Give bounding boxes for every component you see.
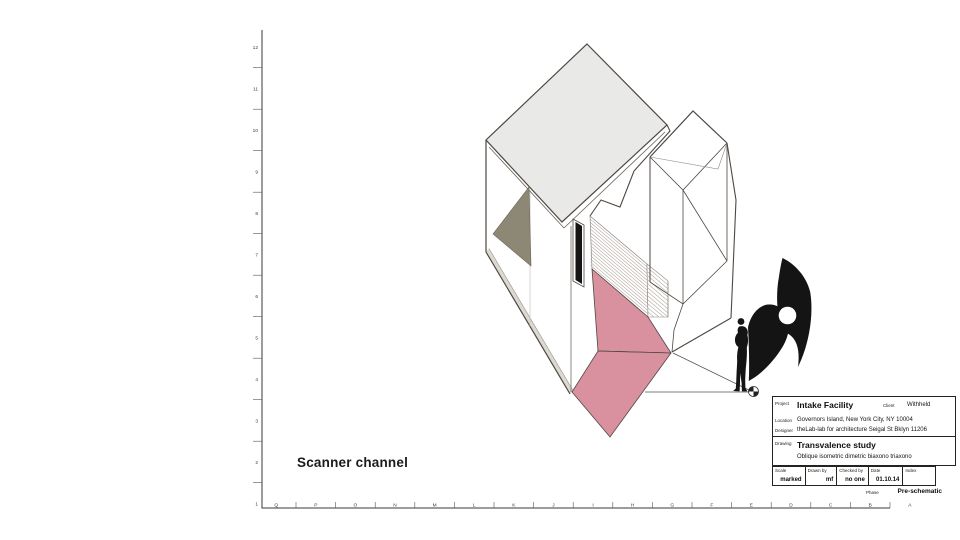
drawn-by-value: mf bbox=[826, 477, 833, 483]
title-block-table: Scale marked Drawn by mf Checked by no o… bbox=[772, 466, 936, 486]
checked-by-cell: Checked by no one bbox=[836, 467, 868, 485]
grid-col-label: A bbox=[908, 503, 912, 509]
grid-row-label: 12 bbox=[253, 45, 259, 51]
drawn-by-label: Drawn by bbox=[808, 468, 827, 473]
date-label: Date bbox=[871, 468, 881, 473]
grid-col-label: C bbox=[829, 503, 833, 509]
grid-row-label: 8 bbox=[255, 211, 258, 217]
grid-row-label: 6 bbox=[255, 294, 258, 300]
index-label: Index bbox=[905, 468, 916, 473]
grid-col-label: D bbox=[789, 503, 793, 509]
project-label: Project bbox=[775, 401, 789, 406]
survey-target-icon bbox=[749, 387, 759, 397]
designer-value: theLab-lab for architecture Seigal St Bk… bbox=[797, 427, 927, 433]
crescent-cutout-circle bbox=[779, 307, 797, 325]
grid-col-label: M bbox=[433, 503, 437, 509]
title-block-header: Project Intake Facility Client Withheld … bbox=[772, 396, 956, 466]
figure-head bbox=[738, 318, 745, 325]
grid-row-label: 1 bbox=[255, 501, 258, 507]
human-figure-silhouette bbox=[733, 318, 748, 391]
grid-row-label: 10 bbox=[253, 128, 259, 134]
scale-value: marked bbox=[780, 477, 801, 483]
grid-row-label: 7 bbox=[255, 252, 258, 258]
client-name: Withheld bbox=[907, 402, 930, 408]
grid-row-label: 5 bbox=[255, 335, 258, 341]
figure-body bbox=[733, 326, 748, 391]
drawn-by-cell: Drawn by mf bbox=[805, 467, 837, 485]
grid-row-label: 2 bbox=[255, 460, 258, 466]
grid-col-label: B bbox=[869, 503, 872, 509]
location-value: Governors Island, New York City, NY 1000… bbox=[797, 417, 913, 423]
phase-value: Pre-schematic bbox=[898, 488, 942, 495]
project-name: Intake Facility bbox=[797, 400, 853, 410]
checked-by-label: Checked by bbox=[839, 468, 863, 473]
title-block-divider bbox=[773, 436, 955, 437]
grid-col-label: Q bbox=[274, 503, 278, 509]
drawing-sheet: 12 11 10 9 8 7 6 5 4 3 2 1 Q P O N M L K… bbox=[0, 0, 960, 540]
drawing-label: Drawing bbox=[775, 441, 792, 446]
drawing-title: Transvalence study bbox=[797, 440, 876, 450]
door-slot bbox=[576, 222, 583, 284]
grid-col-label: I bbox=[592, 503, 593, 509]
date-cell: Date 01.10.14 bbox=[868, 467, 903, 485]
grid-row-label: 9 bbox=[255, 169, 258, 175]
grid-col-label: L bbox=[473, 503, 476, 509]
grid-col-label: E bbox=[750, 503, 753, 509]
grid-row-label: 4 bbox=[255, 377, 258, 383]
phase-label: Phase bbox=[866, 490, 879, 495]
client-label: Client bbox=[883, 403, 895, 408]
grid-row-label: 3 bbox=[255, 418, 258, 424]
date-value: 01.10.14 bbox=[876, 477, 899, 483]
grid-col-label: N bbox=[393, 503, 397, 509]
axonometric-drawing bbox=[486, 44, 811, 437]
grid-col-label: F bbox=[710, 503, 713, 509]
grid-col-label: G bbox=[670, 503, 674, 509]
drawing-note: Scanner channel bbox=[297, 455, 408, 470]
designer-label: Designer bbox=[775, 428, 793, 433]
grid-col-label: H bbox=[631, 503, 635, 509]
index-cell: Index bbox=[902, 467, 935, 485]
drawing-subtitle: Oblique isometric dimetric biaxono triax… bbox=[797, 454, 912, 460]
location-label: Location bbox=[775, 418, 792, 423]
checked-by-value: no one bbox=[845, 477, 865, 483]
phase-row: Phase Pre-schematic bbox=[772, 488, 942, 500]
grid-col-label: P bbox=[314, 503, 317, 509]
grid-col-label: O bbox=[354, 503, 358, 509]
crescent-motif bbox=[748, 258, 811, 381]
scale-label: Scale bbox=[775, 468, 786, 473]
grid-row-label: 11 bbox=[253, 86, 258, 92]
scale-cell: Scale marked bbox=[773, 467, 805, 485]
